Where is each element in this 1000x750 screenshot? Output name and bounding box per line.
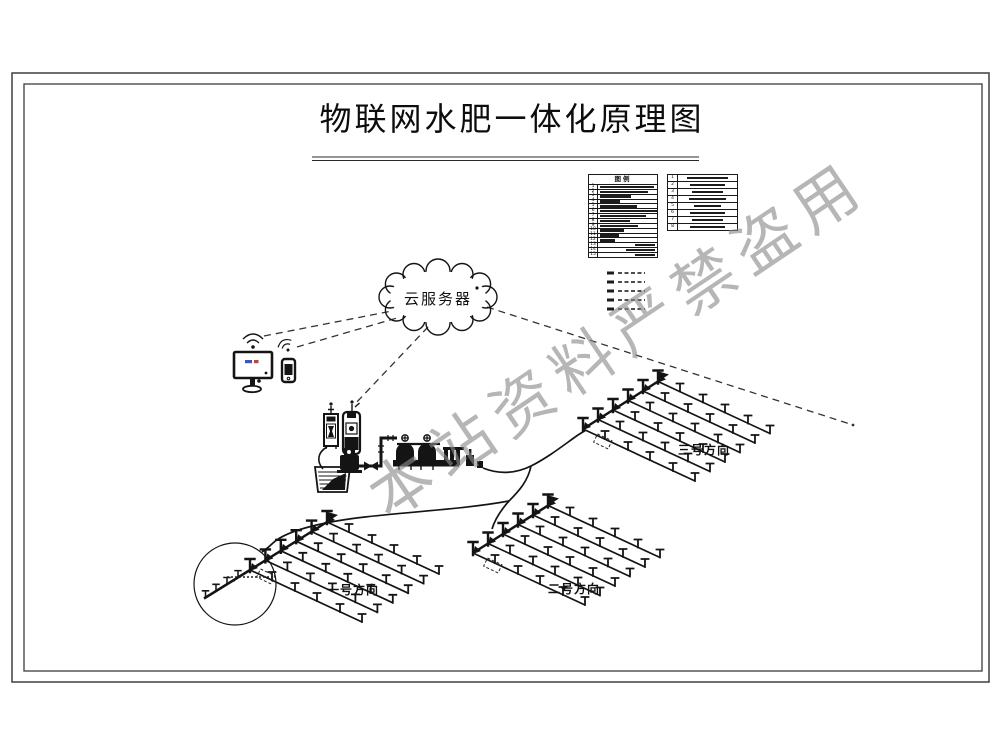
legend-table: 图例 1 2 3 4 5 6 7 8 9 10 11 12 13 14 15 [588, 174, 658, 258]
legend-row-number: 2 [668, 182, 678, 188]
legend-row-text-smudge [687, 177, 727, 180]
legend-row: 5 [668, 203, 737, 210]
legend-row-text-smudge [690, 212, 725, 215]
link-cloud-station [354, 327, 428, 405]
legend-row-text-smudge [689, 198, 727, 201]
legend-table-2: 1 2 3 4 5 6 7 8 [667, 174, 738, 231]
dosing-tank-b-icon [343, 400, 360, 454]
legend-row-text-smudge [600, 220, 630, 222]
cloud-dot [475, 286, 478, 289]
pipe-to-field3 [483, 430, 586, 472]
legend-row: 1 [668, 175, 737, 182]
irrigation-field-1 [203, 511, 443, 622]
cloud-server-label: 云服务器 [404, 288, 472, 309]
irrigation-field-3 [579, 371, 774, 482]
valve-handwheel-icon [402, 435, 409, 442]
legend-row: 7 [668, 217, 737, 224]
legend-row: 6 [668, 210, 737, 217]
detail-circle [194, 543, 276, 625]
title-underline [312, 157, 699, 161]
dosing-tank-a-icon [324, 402, 338, 449]
field-1-label: 一号方向 [327, 581, 379, 598]
monitor-base [243, 386, 261, 392]
disc-filter-icon [443, 447, 464, 465]
legend-row: 3 [668, 189, 737, 196]
link-cloud-field3 [487, 307, 850, 424]
legend-row: 2 [668, 182, 737, 189]
legend-row-text-smudge [600, 191, 648, 193]
link-monitor-cloud [264, 311, 392, 336]
legend-row-number: 8 [668, 224, 678, 230]
legend-row-text-smudge [600, 215, 646, 217]
injector-icon [466, 449, 474, 466]
legend-row-number: 5 [668, 203, 678, 209]
drawing-frame [12, 73, 989, 682]
monitor-icon [234, 334, 272, 392]
legend-row-text-smudge [635, 244, 655, 246]
phone-icon [276, 337, 295, 382]
legend-row-number: 7 [668, 217, 678, 223]
fertigation-station [315, 400, 483, 492]
link-phone-cloud [297, 318, 397, 347]
legend-row: 4 [668, 196, 737, 203]
legend-row-text-smudge [600, 210, 657, 212]
monitor-stand [250, 378, 255, 385]
legend-row-text-smudge [600, 239, 615, 241]
legend-row-text-smudge [692, 191, 724, 194]
legend-row-number: 1 [668, 175, 678, 181]
pump-icon [337, 448, 362, 473]
screen-blue-bar [245, 360, 252, 363]
suction-hose [319, 447, 327, 469]
outlet-unit-icon [477, 461, 483, 468]
inner-border [24, 84, 982, 671]
legend-row-number: 15 [589, 253, 598, 257]
legend-row: 8 [668, 224, 737, 230]
legend-row-number: 4 [668, 196, 678, 202]
mainline-pipe [393, 460, 459, 467]
legend-row-text-smudge [600, 200, 620, 202]
outer-border [12, 73, 989, 682]
phone-home-button [287, 377, 290, 380]
legend-row: 15 [589, 253, 657, 257]
legend-row-text-smudge [600, 205, 637, 207]
field-3-label: 三号方向 [678, 441, 730, 458]
legend-row-text-smudge [600, 186, 654, 188]
legend-title: 图例 [589, 175, 657, 185]
legend-row-text-smudge [635, 254, 655, 256]
legend-row-text-smudge [626, 249, 655, 251]
legend-row-text-smudge [690, 226, 726, 229]
wifi-icon [243, 334, 263, 349]
link-endpoint-dot [852, 424, 855, 427]
field-2-label: 二号方向 [548, 580, 600, 597]
wifi-icon [276, 337, 295, 355]
page-title: 物联网水肥一体化原理图 [24, 94, 1000, 140]
phone-screen [285, 364, 293, 375]
valve-handwheel-icon [424, 435, 431, 442]
legend-row-text-smudge [600, 225, 638, 227]
legend-row-text-smudge [692, 219, 722, 222]
drawing-page: 物联网水肥一体化原理图 云服务器 图例 1 2 3 4 5 6 7 8 9 10… [0, 0, 1000, 750]
legend-row-text-smudge [690, 184, 726, 187]
legend-row-number: 3 [668, 189, 678, 195]
screen-red-bar [254, 360, 259, 363]
legend-row-text-smudge [694, 205, 722, 208]
legend-line-samples [607, 272, 645, 311]
legend-row-number: 6 [668, 210, 678, 216]
legend-row-text-smudge [600, 229, 624, 231]
legend-row-text-smudge [600, 195, 631, 197]
legend-row-text-smudge [600, 234, 619, 236]
